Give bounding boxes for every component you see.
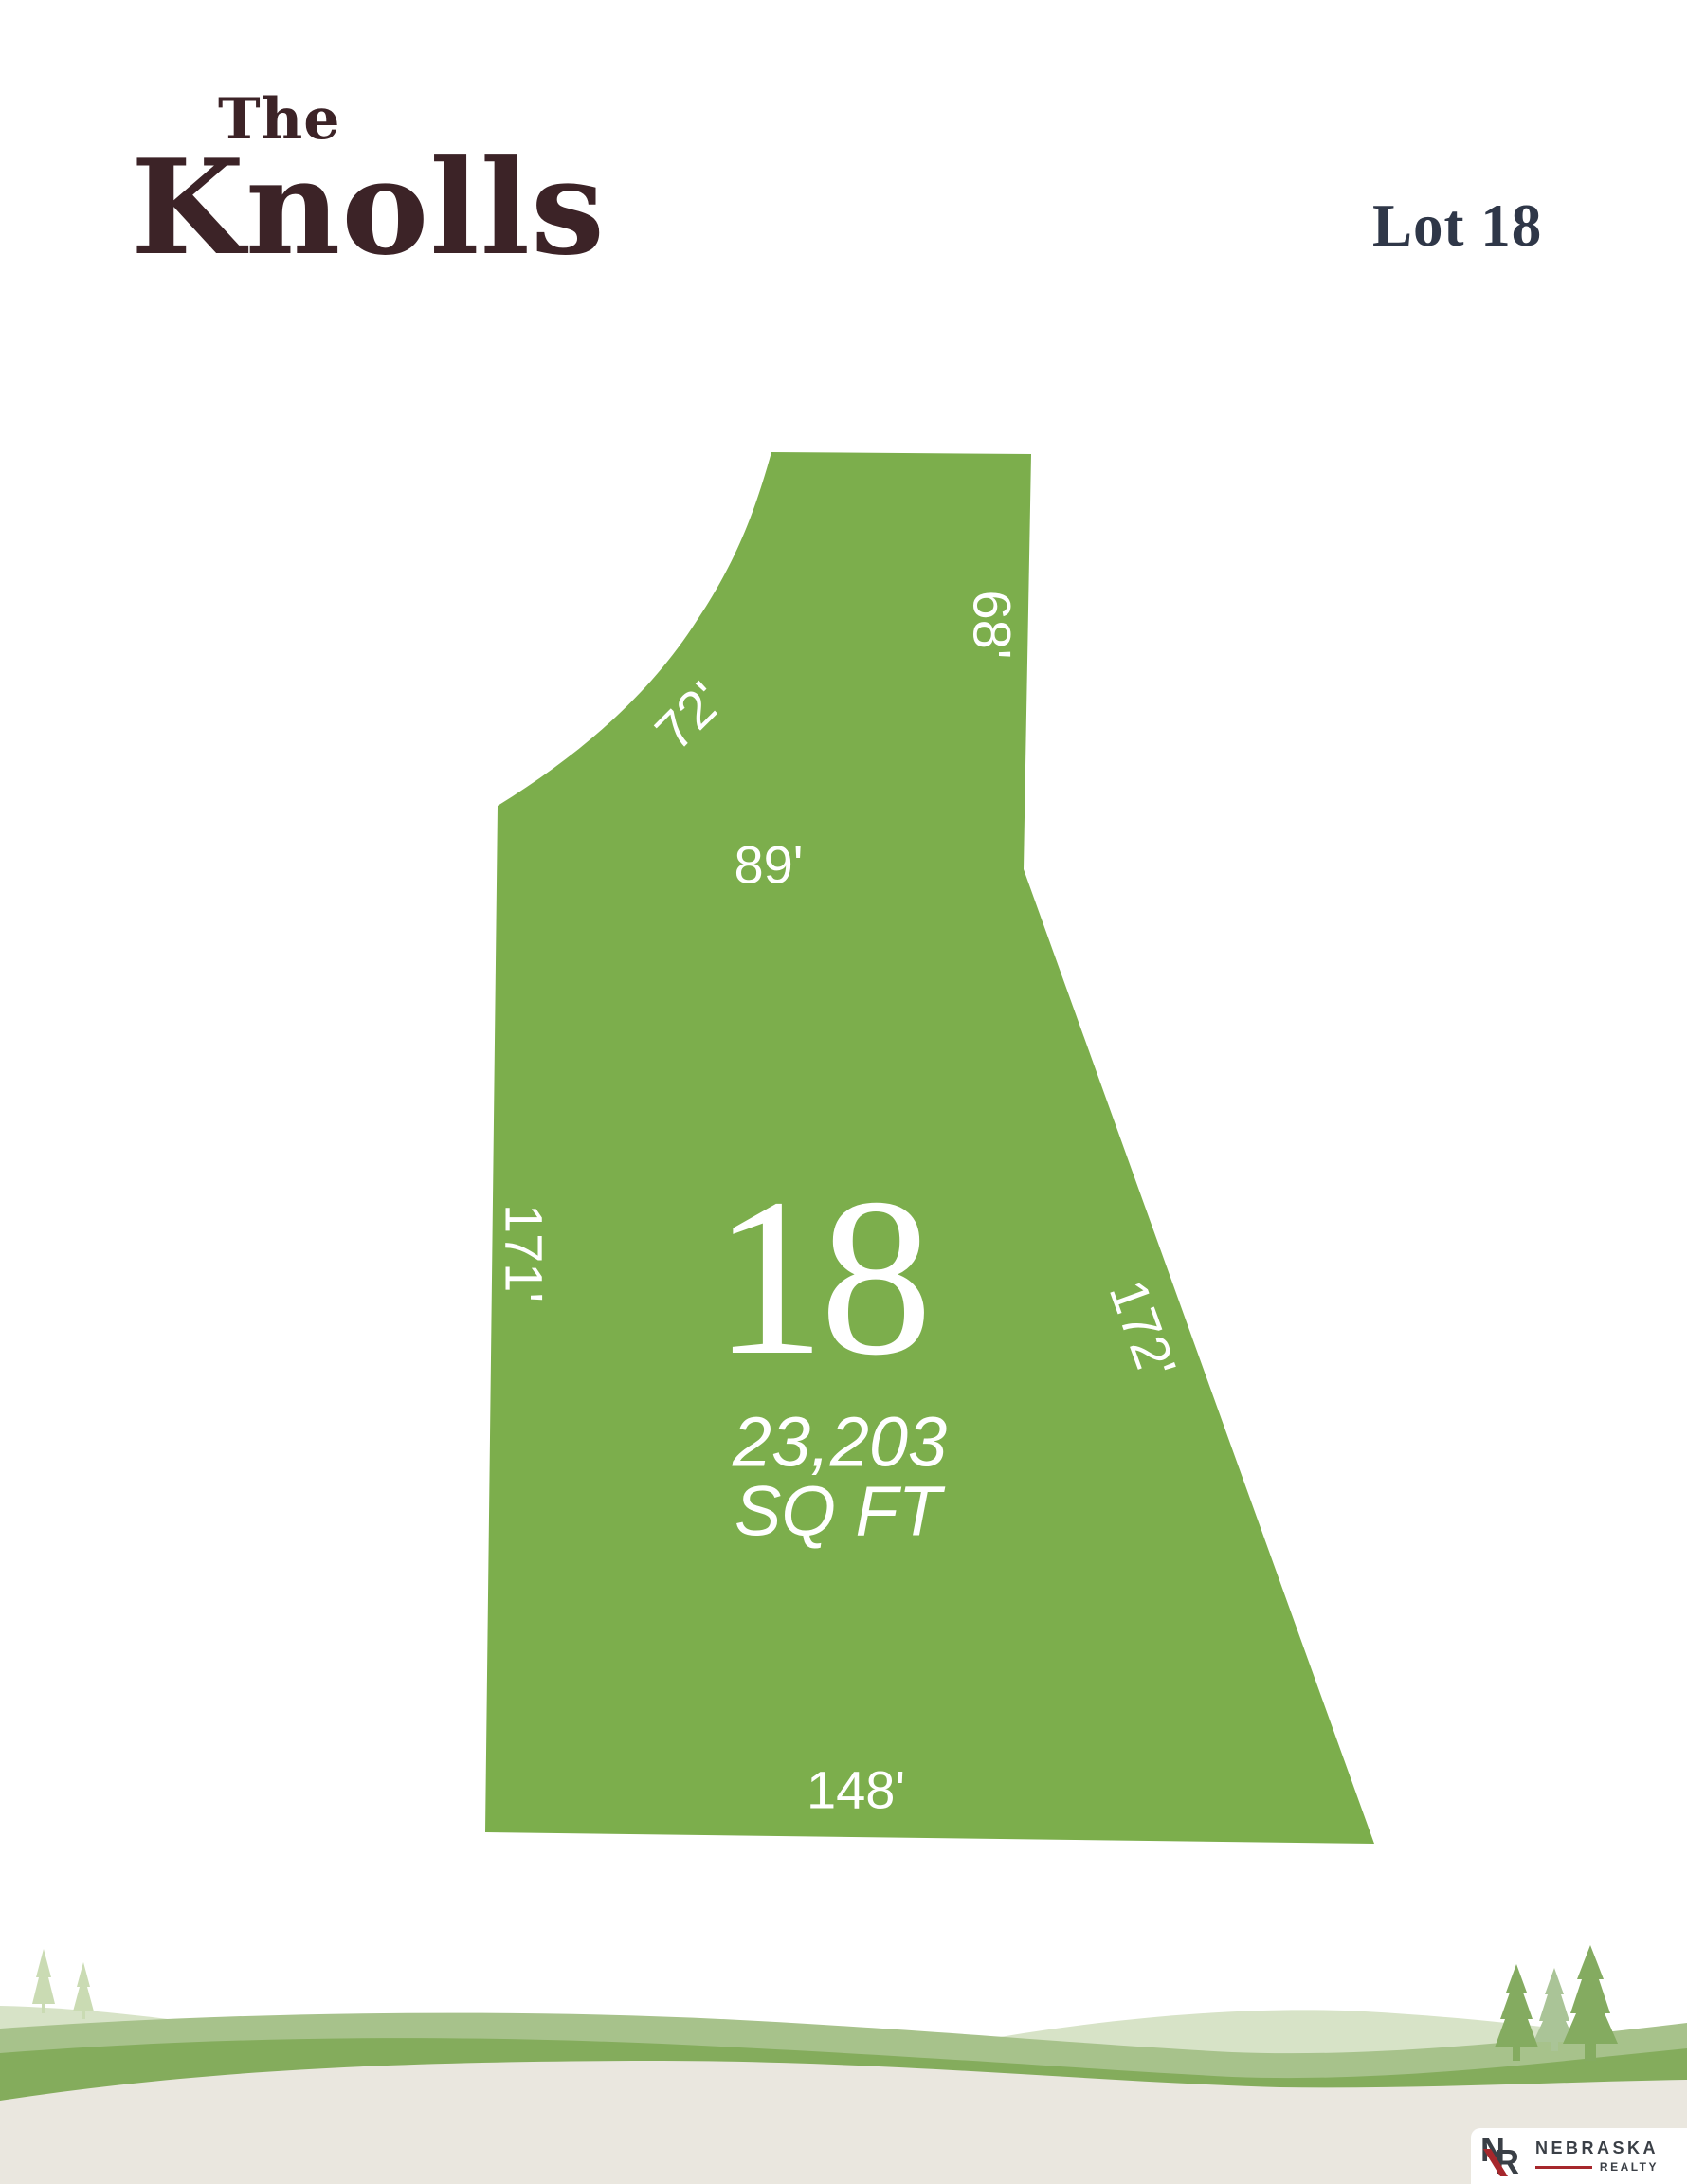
dimension-label-171: 171' <box>494 1204 555 1302</box>
nebraska-realty-logo: N R NEBRASKA REALTY <box>1471 2128 1687 2184</box>
dimension-label-148: 148' <box>807 1759 905 1821</box>
lot-area-unit: SQ FT <box>735 1471 941 1552</box>
nr-monogram-icon: N R <box>1480 2134 1528 2179</box>
dimension-label-68: 68' <box>962 591 1024 660</box>
realty-text-block: NEBRASKA REALTY <box>1535 2138 1659 2174</box>
realty-subtitle: REALTY <box>1600 2160 1659 2174</box>
pine-tree-icon <box>73 1962 94 2019</box>
realty-name: NEBRASKA <box>1535 2138 1659 2158</box>
realty-red-rule <box>1535 2166 1592 2169</box>
flyer-page: The Knolls Lot 18 68' 72' 89' 171' 172' … <box>0 0 1687 2184</box>
dimension-label-89: 89' <box>735 834 804 896</box>
pine-tree-icon <box>1563 1945 1618 2061</box>
pine-tree-icon <box>32 1949 55 2013</box>
footer-landscape <box>0 1909 1687 2184</box>
realty-subtitle-row: REALTY <box>1535 2160 1659 2174</box>
pine-tree-icon <box>1495 1964 1538 2061</box>
lot-number: 18 <box>713 1165 927 1391</box>
lot-polygon <box>485 452 1374 1844</box>
svg-text:R: R <box>1495 2142 1519 2179</box>
lot-polygon-svg <box>0 0 1687 2184</box>
